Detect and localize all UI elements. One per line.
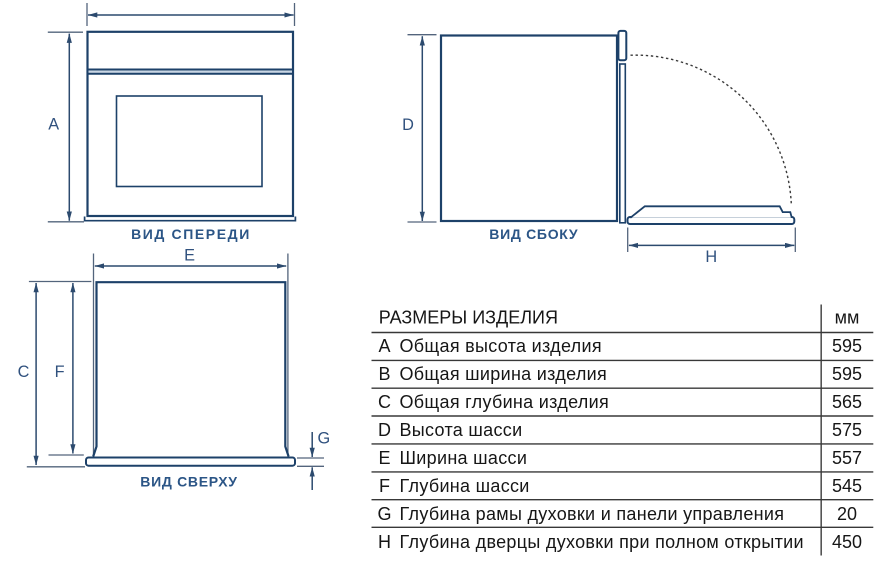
svg-text:Глубина дверцы духовки при пол: Глубина дверцы духовки при полном открыт… <box>400 532 804 552</box>
svg-text:Глубина шасси: Глубина шасси <box>400 476 530 496</box>
svg-text:595: 595 <box>832 336 862 356</box>
svg-text:595: 595 <box>832 364 862 384</box>
svg-text:545: 545 <box>832 476 862 496</box>
svg-text:РАЗМЕРЫ ИЗДЕЛИЯ: РАЗМЕРЫ ИЗДЕЛИЯ <box>379 308 558 328</box>
svg-text:G: G <box>317 429 330 447</box>
svg-text:B: B <box>378 364 390 384</box>
svg-text:ВИД СПЕРЕДИ: ВИД СПЕРЕДИ <box>131 226 251 242</box>
svg-text:E: E <box>184 247 195 265</box>
svg-text:Общая ширина изделия: Общая ширина изделия <box>400 364 608 384</box>
svg-text:E: E <box>378 448 390 468</box>
svg-text:F: F <box>379 476 390 496</box>
svg-text:557: 557 <box>832 448 862 468</box>
svg-text:Общая глубина изделия: Общая глубина изделия <box>400 392 610 412</box>
svg-text:H: H <box>378 532 391 552</box>
svg-text:A: A <box>378 336 390 356</box>
svg-text:ВИД СБОКУ: ВИД СБОКУ <box>489 226 578 242</box>
svg-text:565: 565 <box>832 392 862 412</box>
svg-text:C: C <box>378 392 391 412</box>
svg-text:F: F <box>55 363 65 381</box>
svg-text:450: 450 <box>832 532 862 552</box>
svg-text:C: C <box>18 363 30 381</box>
svg-text:мм: мм <box>835 308 860 328</box>
svg-text:ВИД СВЕРХУ: ВИД СВЕРХУ <box>140 474 237 490</box>
svg-text:H: H <box>705 248 717 266</box>
svg-text:Общая высота изделия: Общая высота изделия <box>400 336 602 356</box>
svg-text:D: D <box>378 420 391 440</box>
svg-text:G: G <box>377 504 391 524</box>
svg-text:20: 20 <box>837 504 857 524</box>
svg-text:A: A <box>48 115 59 133</box>
svg-text:Высота шасси: Высота шасси <box>400 420 523 440</box>
svg-text:Ширина шасси: Ширина шасси <box>400 448 528 468</box>
svg-text:Глубина рамы духовки и панели: Глубина рамы духовки и панели управления <box>400 504 785 524</box>
svg-text:D: D <box>402 116 414 134</box>
svg-text:575: 575 <box>832 420 862 440</box>
